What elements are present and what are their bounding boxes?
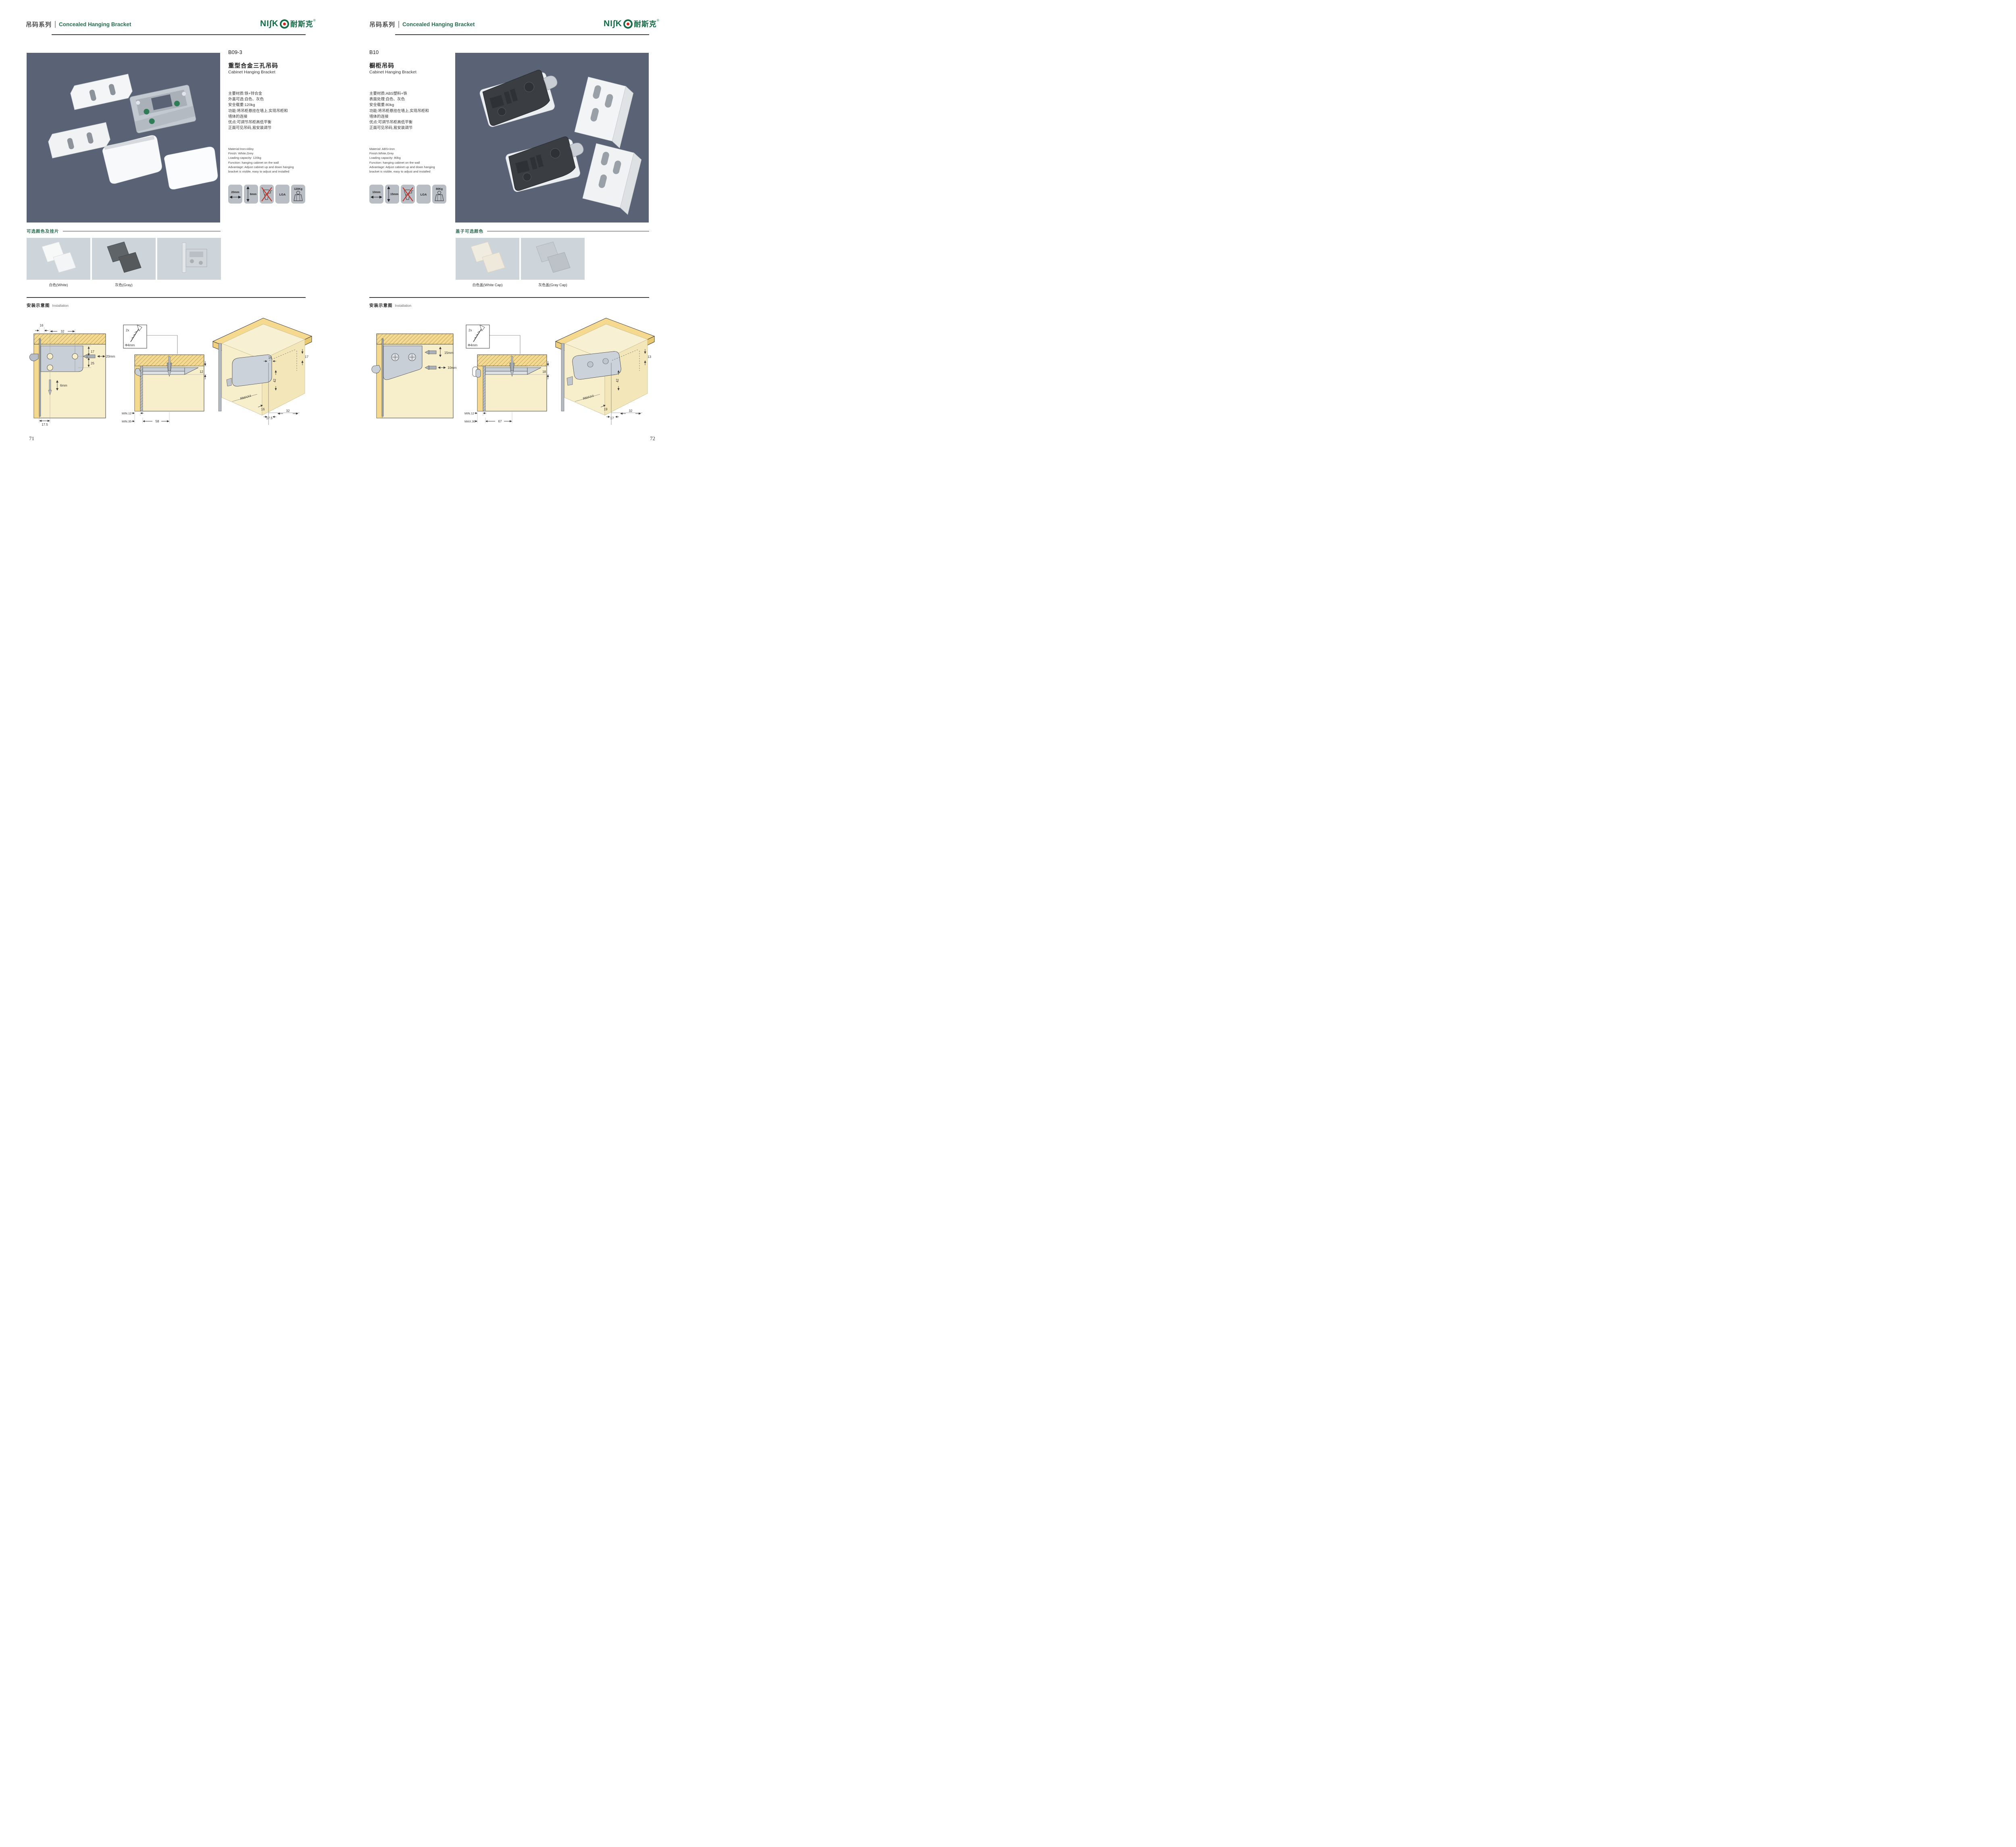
spec-line: 功能:将吊柜悬挂在墙上,实现吊柜和 bbox=[369, 108, 452, 114]
registered-mark: ® bbox=[313, 19, 316, 22]
spec-line: Function: hanging cabinet on the wall bbox=[369, 160, 452, 165]
spec-line: Function: hanging cabinet on the wall bbox=[228, 160, 309, 165]
brand-logo: NI∫K 耐斯克 ® bbox=[260, 19, 316, 29]
header-rule bbox=[52, 34, 306, 35]
specs-en: Material: ABS+iron Finish:White,Grey Loa… bbox=[369, 147, 452, 174]
height-dimension-icon: 15mm bbox=[385, 185, 399, 204]
installation-title-cn: 安装示意图 bbox=[369, 302, 393, 308]
svg-text:120Kg: 120Kg bbox=[294, 188, 302, 191]
no-drill-icon bbox=[401, 185, 415, 204]
svg-text:16: 16 bbox=[40, 324, 44, 327]
colors-section-header: 可选颜色及挂片 bbox=[27, 228, 221, 234]
spec-line: 优点:可调节吊柜高低平衡 bbox=[369, 120, 452, 125]
model-number: B10 bbox=[369, 49, 379, 55]
specs-en: Material:Iron+Alloy Finish: White,Grey L… bbox=[228, 147, 309, 174]
svg-text:19: 19 bbox=[604, 408, 608, 411]
product-name-cn: 重型合金三孔吊码 bbox=[228, 61, 278, 70]
spec-line: 安全载重:120kg bbox=[228, 102, 309, 108]
feature-icons-row: 20mm 6mm bbox=[228, 185, 305, 204]
svg-text:10mm: 10mm bbox=[372, 191, 380, 194]
svg-text:15mm: 15mm bbox=[390, 193, 398, 196]
logo-red-dot-icon bbox=[283, 23, 286, 25]
product-photo-b10 bbox=[455, 53, 649, 223]
feature-icons-row: 10mm 15mm bbox=[369, 185, 446, 204]
swatch-label: 白色(White) bbox=[27, 282, 90, 287]
spec-line: Material: ABS+iron bbox=[369, 147, 452, 151]
svg-text:58: 58 bbox=[156, 420, 159, 423]
product-name-en: Cabinet Hanging Bracket bbox=[369, 70, 417, 75]
spec-line: 主要材质:铁+锌合金 bbox=[228, 91, 309, 97]
installation-diagram-section: 15mm 10mm bbox=[369, 319, 462, 426]
svg-text:17: 17 bbox=[91, 350, 94, 354]
spec-line: Advantage: Adjust cabinet up and down ha… bbox=[369, 165, 452, 169]
svg-text:32: 32 bbox=[61, 330, 65, 333]
spec-line: 安全载重:80kg bbox=[369, 102, 452, 108]
installation-header: 安装示意图 Installation bbox=[27, 302, 69, 308]
product-name-en: Cabinet Hanging Bracket bbox=[228, 70, 275, 75]
load-capacity-icon: 80Kg bbox=[432, 185, 446, 204]
colors-section-header: 盖子可选颜色 bbox=[456, 228, 649, 234]
colors-title-rule bbox=[63, 231, 221, 232]
logo-red-dot-icon bbox=[627, 23, 629, 25]
specs-cn: 主要材质:铁+锌合金 外盖可选:白色、灰色 安全载重:120kg 功能:将吊柜悬… bbox=[228, 91, 309, 131]
no-drill-icon bbox=[260, 185, 274, 204]
svg-text:32: 32 bbox=[629, 409, 633, 413]
installation-header: 安装示意图 Installation bbox=[369, 302, 411, 308]
svg-text:42: 42 bbox=[273, 379, 277, 382]
svg-text:13: 13 bbox=[648, 355, 651, 359]
model-number: B09-3 bbox=[228, 49, 242, 55]
svg-text:80Kg: 80Kg bbox=[436, 188, 443, 191]
series-title-cn: 吊码系列 bbox=[369, 20, 395, 29]
spec-line: 表面处理:白色、灰色 bbox=[369, 97, 452, 102]
svg-text:17.5: 17.5 bbox=[42, 423, 48, 426]
svg-text:17: 17 bbox=[305, 355, 308, 359]
width-dimension-icon: 20mm bbox=[228, 185, 242, 204]
colors-title: 盖子可选颜色 bbox=[456, 228, 483, 234]
colors-title-rule bbox=[487, 231, 649, 232]
svg-text:12: 12 bbox=[200, 370, 203, 374]
width-dimension-icon: 10mm bbox=[369, 185, 383, 204]
swatch-label: 灰色盖(Gray Cap) bbox=[521, 282, 585, 287]
product-photo-b09-3 bbox=[27, 53, 220, 223]
section-divider bbox=[27, 297, 306, 298]
swatch-white-cap bbox=[456, 238, 519, 280]
spec-line: Finish:White,Grey bbox=[369, 151, 452, 156]
spec-line: 功能:将吊柜悬挂在墙上,实现吊柜和 bbox=[228, 108, 309, 114]
logo-o-icon bbox=[623, 19, 633, 29]
svg-text:MIN.12: MIN.12 bbox=[464, 412, 474, 415]
svg-text:LGA: LGA bbox=[279, 193, 286, 196]
logo-text-cn: 耐斯克 bbox=[634, 19, 657, 29]
svg-text:Φ4mm: Φ4mm bbox=[125, 343, 135, 347]
svg-text:32: 32 bbox=[286, 409, 290, 413]
swatch-white-caps bbox=[27, 238, 90, 280]
installation-diagram-section: 20mm 6mm 16 32 17 25 17.5 bbox=[27, 319, 119, 426]
spec-line: 正面可见吊码,易安装调节 bbox=[228, 125, 309, 131]
header-rule bbox=[395, 34, 649, 35]
svg-text:MIN.35: MIN.35 bbox=[122, 420, 131, 423]
svg-text:17.5: 17.5 bbox=[266, 416, 273, 420]
header-separator bbox=[398, 21, 399, 28]
spec-line: 墙体的连接 bbox=[369, 114, 452, 120]
specs-cn: 主要材质:ABS塑料+铁 表面处理:白色、灰色 安全载重:80kg 功能:将吊柜… bbox=[369, 91, 452, 131]
registered-mark: ® bbox=[657, 19, 659, 22]
logo-text: NI∫K bbox=[260, 19, 279, 29]
spec-line: 外盖可选:白色、灰色 bbox=[228, 97, 309, 102]
installation-diagram-section: 13 42 RMAX4 19 17 32 bbox=[552, 311, 658, 429]
page-number: 71 bbox=[29, 435, 34, 442]
svg-text:16: 16 bbox=[269, 356, 272, 360]
spec-line: 优点:可调节吊柜高低平衡 bbox=[228, 120, 309, 125]
series-title-cn: 吊码系列 bbox=[26, 20, 52, 29]
svg-text:20mm: 20mm bbox=[106, 355, 115, 358]
installation-title-en: Installation bbox=[52, 304, 69, 308]
page-header: 吊码系列 Concealed Hanging Bracket bbox=[369, 20, 475, 29]
page-number: 72 bbox=[639, 435, 655, 442]
lga-cert-icon: LGA bbox=[417, 185, 431, 204]
swatch-label: 白色盖(White Cap) bbox=[456, 282, 519, 287]
spec-line: Advantage: Adjust cabinet up and down ha… bbox=[228, 165, 309, 169]
svg-text:10mm: 10mm bbox=[448, 366, 457, 370]
swatch-label: 灰色(Gray) bbox=[92, 282, 156, 287]
lga-cert-icon: LGA bbox=[275, 185, 289, 204]
svg-text:MIN.12: MIN.12 bbox=[122, 412, 131, 415]
load-capacity-icon: 120Kg bbox=[291, 185, 305, 204]
svg-text:20mm: 20mm bbox=[231, 191, 239, 194]
header-separator bbox=[55, 21, 56, 28]
section-divider bbox=[369, 297, 649, 298]
spec-line: Material:Iron+Alloy bbox=[228, 147, 309, 151]
logo-o-icon bbox=[280, 19, 289, 29]
svg-text:67: 67 bbox=[498, 420, 502, 423]
svg-text:2x: 2x bbox=[469, 329, 472, 332]
series-title-en: Concealed Hanging Bracket bbox=[59, 21, 131, 27]
page-header: 吊码系列 Concealed Hanging Bracket bbox=[26, 20, 131, 29]
swatch-gray-cap bbox=[521, 238, 585, 280]
installation-title-en: Installation bbox=[395, 304, 412, 308]
svg-text:2x: 2x bbox=[126, 329, 129, 332]
spec-line: 墙体的连接 bbox=[228, 114, 309, 120]
svg-text:6mm: 6mm bbox=[250, 193, 256, 196]
svg-text:LGA: LGA bbox=[421, 193, 427, 196]
height-dimension-icon: 6mm bbox=[244, 185, 258, 204]
spec-line: bracket is visible, easy to adjust and i… bbox=[369, 169, 452, 174]
svg-text:42: 42 bbox=[616, 379, 619, 382]
svg-text:15mm: 15mm bbox=[444, 351, 454, 355]
spec-line: Loading capacity: 120kg bbox=[228, 156, 309, 160]
svg-text:Φ4mm: Φ4mm bbox=[468, 343, 477, 347]
logo-text-cn: 耐斯克 bbox=[290, 19, 313, 29]
svg-text:MAX.30: MAX.30 bbox=[464, 420, 475, 423]
spec-line: bracket is visible, easy to adjust and i… bbox=[228, 169, 309, 174]
svg-text:6mm: 6mm bbox=[60, 384, 67, 387]
svg-text:18: 18 bbox=[542, 370, 546, 374]
spec-line: 正面可见吊码,易安装调节 bbox=[369, 125, 452, 131]
installation-diagram-section: 2x Φ4mm 12 MIN.12 MIN.35 58 bbox=[121, 319, 208, 426]
swatch-gray-caps bbox=[92, 238, 156, 280]
brand-logo: NI∫K 耐斯克 ® bbox=[604, 19, 659, 29]
colors-title: 可选颜色及挂片 bbox=[27, 228, 59, 234]
svg-text:16: 16 bbox=[261, 408, 265, 411]
svg-text:25: 25 bbox=[91, 362, 94, 365]
spec-line: 主要材质:ABS塑料+铁 bbox=[369, 91, 452, 97]
swatch-metal-bracket bbox=[157, 238, 221, 280]
product-name-cn: 橱柜吊码 bbox=[369, 61, 394, 70]
svg-text:17: 17 bbox=[610, 416, 614, 420]
installation-title-cn: 安装示意图 bbox=[27, 302, 50, 308]
spec-line: Finish: White,Grey bbox=[228, 151, 309, 156]
spec-line: Loading capacity: 80kg bbox=[369, 156, 452, 160]
installation-diagram-section: 17 16 42 RMAX4 16 17.5 32 bbox=[209, 311, 316, 429]
series-title-en: Concealed Hanging Bracket bbox=[402, 21, 475, 27]
installation-diagram-section: 2x Φ4mm 18 MIN.12 MAX.30 67 bbox=[464, 319, 550, 426]
logo-text: NI∫K bbox=[604, 19, 622, 29]
